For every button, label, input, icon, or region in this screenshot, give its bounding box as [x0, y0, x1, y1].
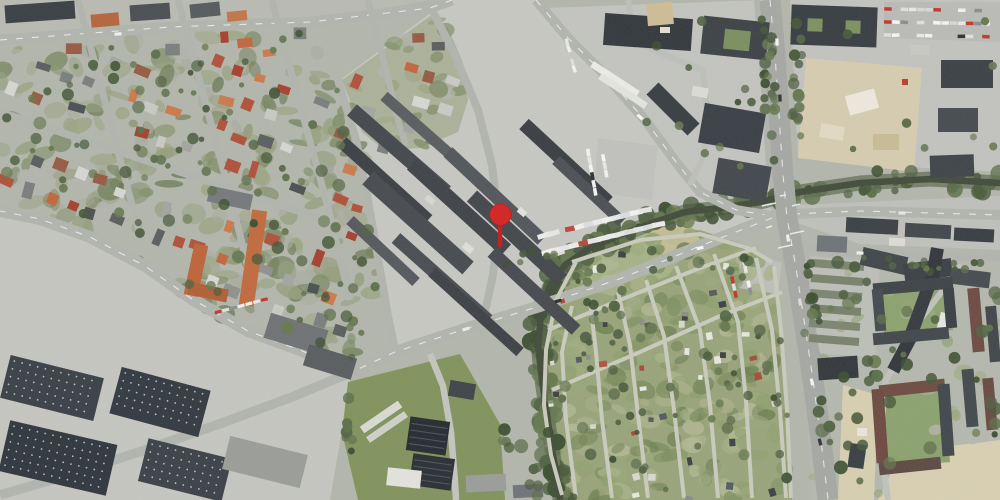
- map-canvas[interactable]: [0, 0, 1000, 500]
- aerial-map-view[interactable]: [0, 0, 1000, 500]
- photo-grain-overlay: [0, 0, 1000, 500]
